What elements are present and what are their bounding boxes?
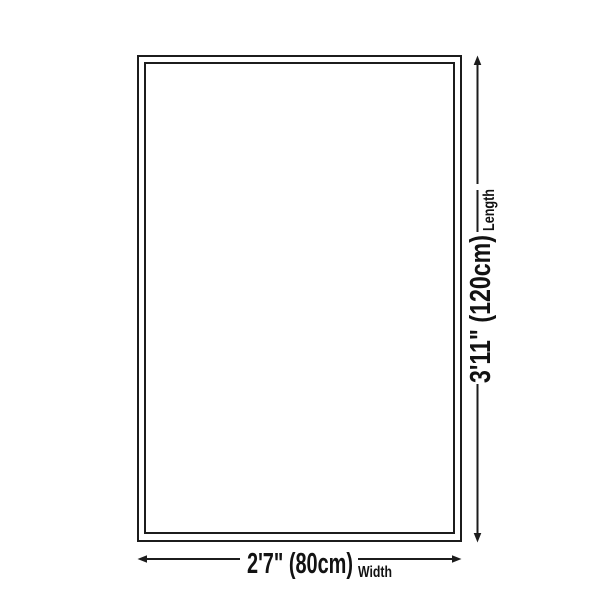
width-dimension: 2'7" (80cm) Width — [138, 548, 462, 581]
length-dimension: 3'11" (120cm) Length — [465, 56, 498, 543]
dimension-diagram-canvas: 2'7" (80cm) Width 3'11" (120cm) Length — [0, 0, 600, 600]
arrow-up-icon — [474, 56, 482, 66]
length-dimension-label: Length — [481, 189, 498, 231]
arrow-left-icon — [138, 555, 148, 563]
length-dimension-value: 3'11" (120cm) — [465, 235, 497, 383]
rug-inner-border — [145, 63, 454, 533]
arrow-down-icon — [474, 533, 482, 543]
rug-dimension-diagram: 2'7" (80cm) Width 3'11" (120cm) Length — [0, 0, 600, 600]
rug-outer-border — [138, 56, 461, 541]
width-dimension-value: 2'7" (80cm) — [247, 548, 353, 580]
arrow-right-icon — [452, 555, 462, 563]
width-dimension-label: Width — [358, 564, 392, 581]
rug-outline — [138, 56, 461, 541]
